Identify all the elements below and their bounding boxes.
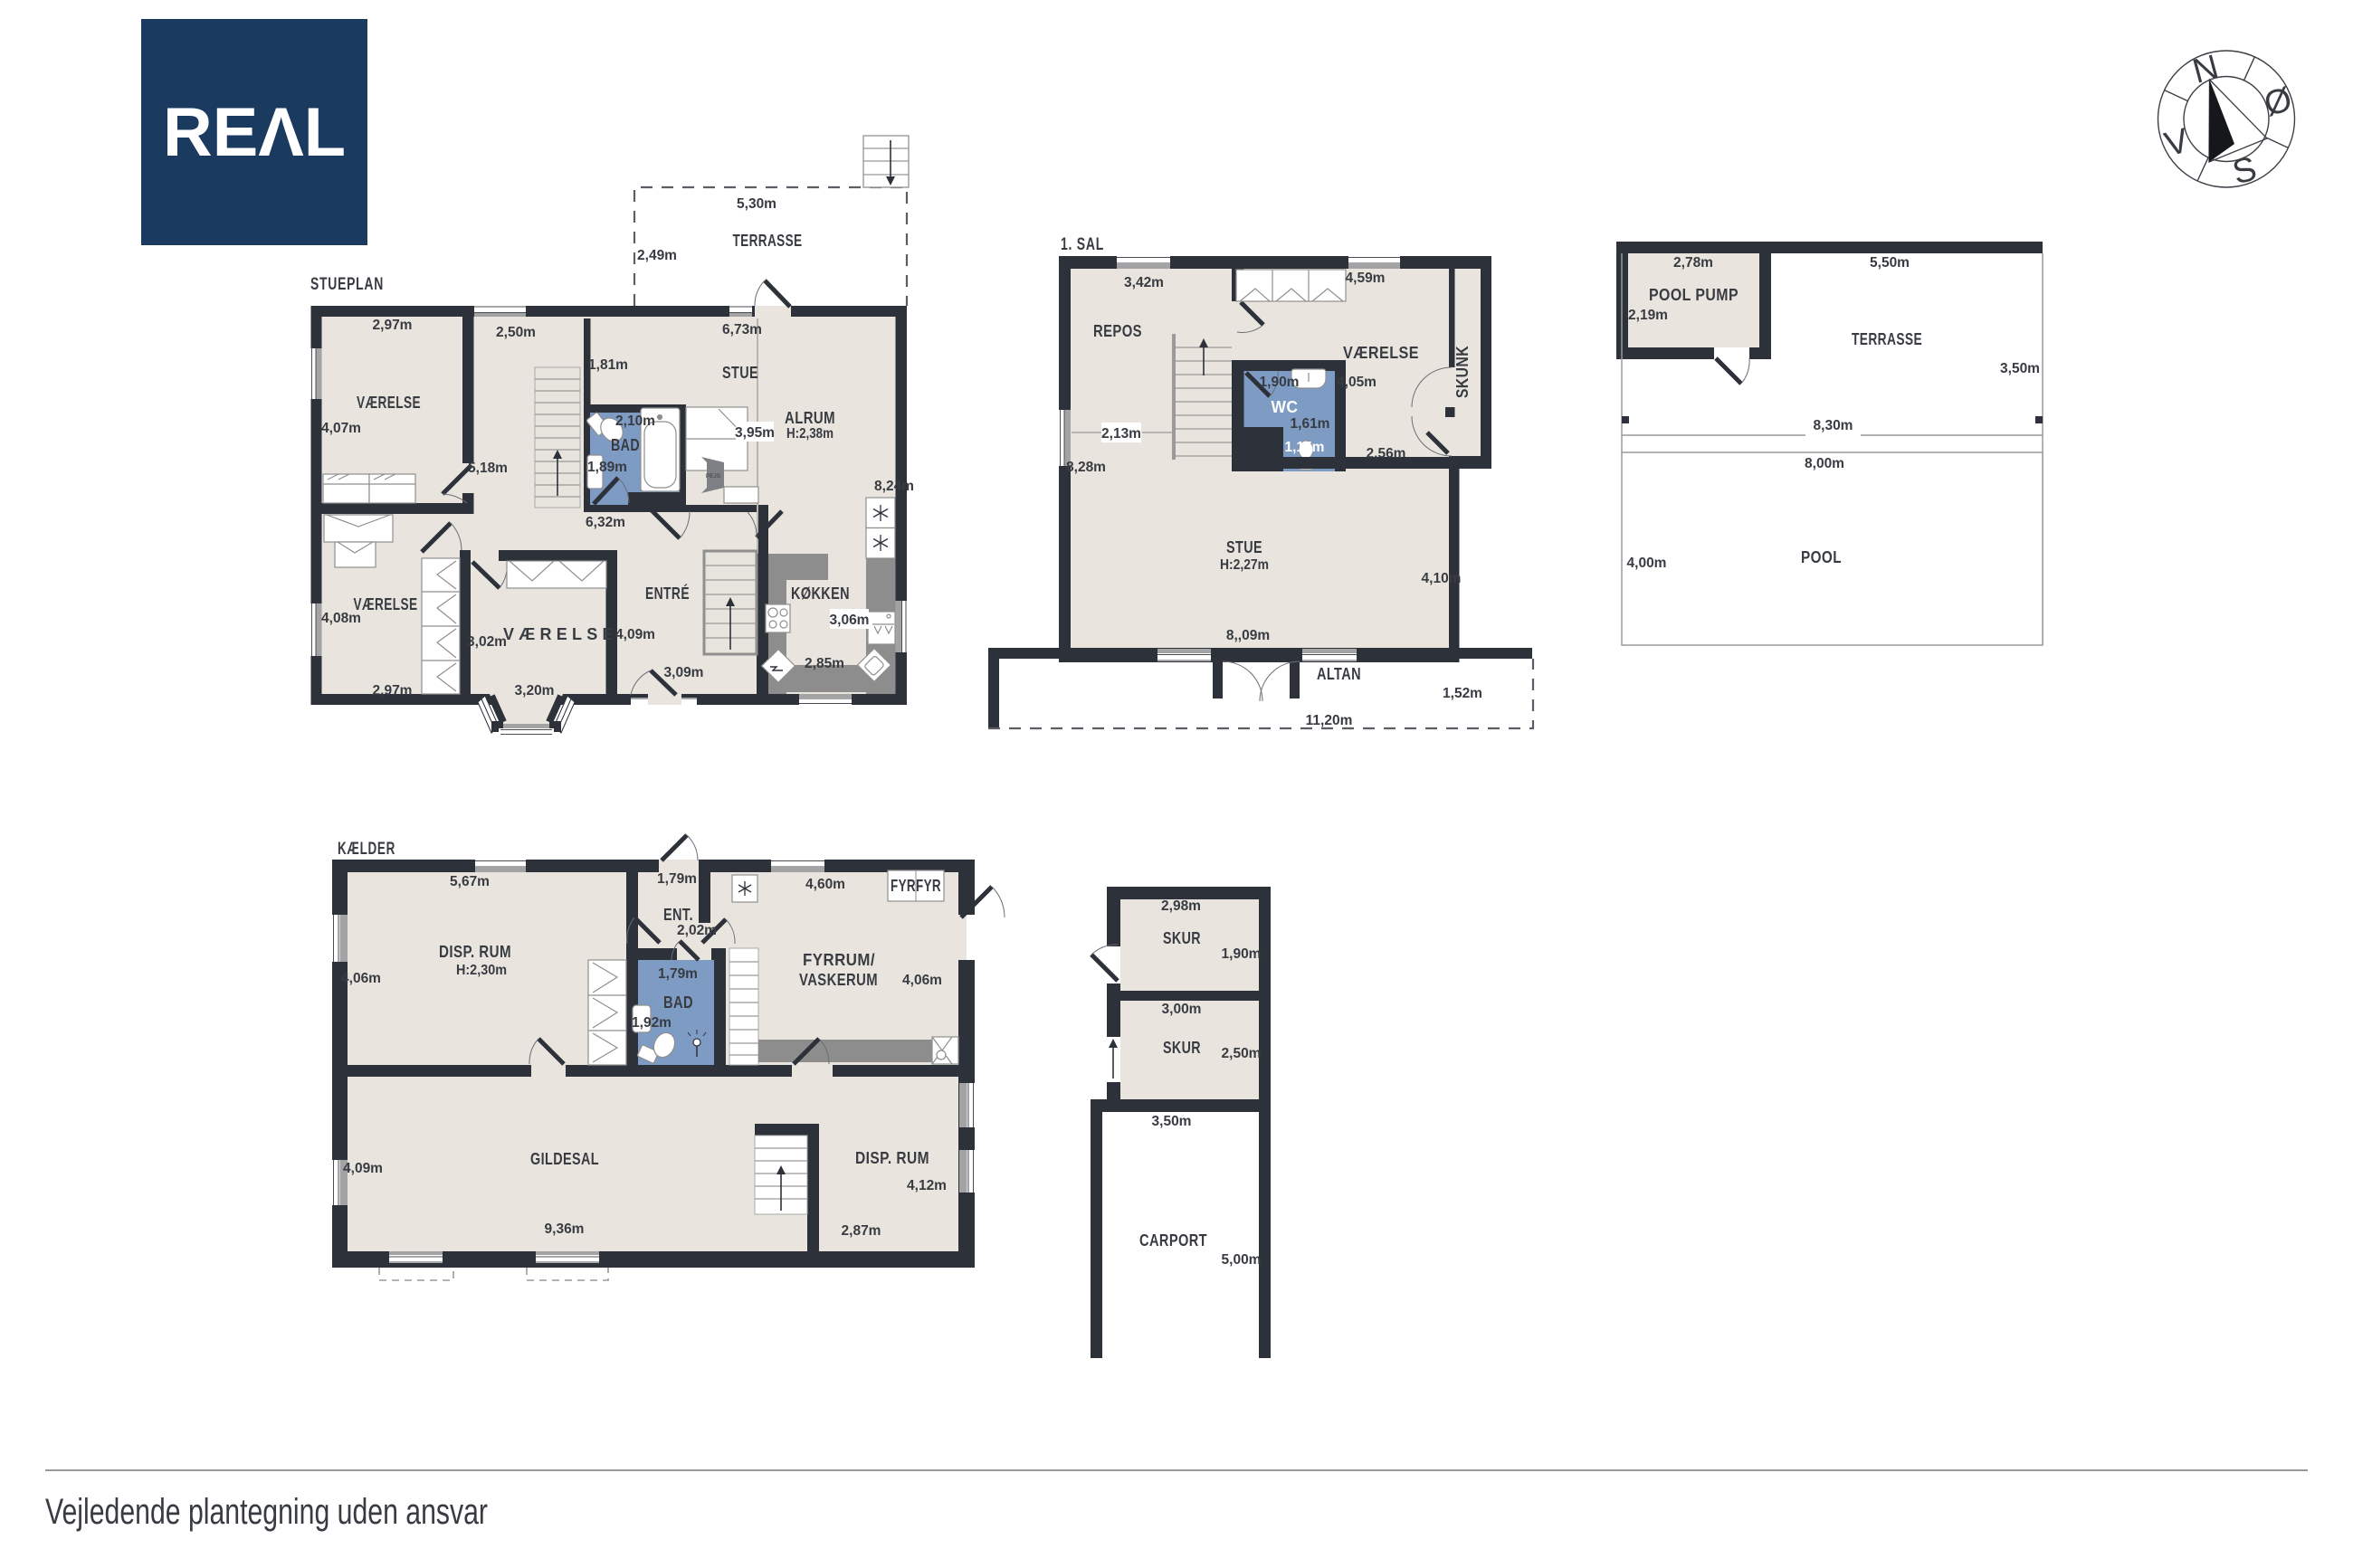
svg-text:8,30m: 8,30m xyxy=(1814,418,1853,433)
svg-text:1,15m: 1,15m xyxy=(1285,440,1325,455)
svg-text:VÆRELSE: VÆRELSE xyxy=(1343,344,1419,362)
svg-text:VÆRELSE: VÆRELSE xyxy=(354,595,418,613)
svg-text:Vejledende plantegning uden an: Vejledende plantegning uden ansvar xyxy=(45,1492,488,1532)
svg-text:REPOS: REPOS xyxy=(1093,322,1142,340)
svg-text:8,24m: 8,24m xyxy=(874,479,914,494)
svg-text:2,50m: 2,50m xyxy=(496,325,536,340)
svg-text:2,02m: 2,02m xyxy=(677,923,717,938)
svg-text:1,79m: 1,79m xyxy=(658,966,698,982)
svg-text:DISP. RUM: DISP. RUM xyxy=(439,943,511,961)
svg-text:4,09m: 4,09m xyxy=(343,1161,383,1176)
svg-text:9,36m: 9,36m xyxy=(545,1221,585,1237)
svg-text:Ø: Ø xyxy=(2261,81,2296,124)
svg-text:1,92m: 1,92m xyxy=(632,1015,672,1031)
svg-text:2,49m: 2,49m xyxy=(637,248,677,263)
svg-text:11,20m: 11,20m xyxy=(1306,713,1353,728)
svg-text:VÆRELSE: VÆRELSE xyxy=(503,625,614,643)
svg-text:H:2,30m: H:2,30m xyxy=(456,963,507,978)
svg-text:TERRASSE: TERRASSE xyxy=(733,232,803,250)
svg-text:2,98m: 2,98m xyxy=(1161,898,1201,914)
svg-text:3,42m: 3,42m xyxy=(1124,275,1164,290)
svg-text:3,95m: 3,95m xyxy=(735,425,775,441)
svg-text:4,06m: 4,06m xyxy=(902,973,942,988)
svg-text:STUEPLAN: STUEPLAN xyxy=(310,275,384,294)
svg-text:6,73m: 6,73m xyxy=(722,322,762,337)
svg-text:POOL: POOL xyxy=(1801,548,1842,566)
svg-text:4,09m: 4,09m xyxy=(615,627,655,642)
svg-text:2,87m: 2,87m xyxy=(842,1223,881,1239)
svg-text:1,61m: 1,61m xyxy=(1291,416,1330,432)
svg-text:VASKERUM: VASKERUM xyxy=(799,971,878,989)
svg-text:4,07m: 4,07m xyxy=(321,421,361,436)
svg-text:4,05m: 4,05m xyxy=(1337,375,1377,390)
svg-text:WC: WC xyxy=(1272,398,1299,416)
svg-text:8,,09m: 8,,09m xyxy=(1226,628,1270,643)
svg-text:S: S xyxy=(2229,149,2261,192)
svg-text:SKUR: SKUR xyxy=(1163,929,1201,947)
svg-text:3,06m: 3,06m xyxy=(830,613,870,628)
svg-text:5,50m: 5,50m xyxy=(1870,255,1910,271)
svg-text:1,89m: 1,89m xyxy=(587,460,627,475)
svg-text:5,18m: 5,18m xyxy=(468,461,508,476)
svg-text:KÆLDER: KÆLDER xyxy=(338,840,395,859)
svg-text:2,85m: 2,85m xyxy=(805,656,844,671)
svg-text:TERRASSE: TERRASSE xyxy=(1852,330,1922,348)
svg-text:ENT.: ENT. xyxy=(663,906,693,924)
svg-text:3,00m: 3,00m xyxy=(1162,1002,1202,1017)
svg-text:1,81m: 1,81m xyxy=(588,357,628,373)
svg-text:3,50m: 3,50m xyxy=(2000,361,2040,376)
svg-text:3,20m: 3,20m xyxy=(515,683,555,698)
svg-text:DISP. RUM: DISP. RUM xyxy=(855,1149,929,1167)
svg-text:4,60m: 4,60m xyxy=(805,877,845,892)
svg-text:4,08m: 4,08m xyxy=(321,611,361,626)
svg-text:STUE: STUE xyxy=(1226,538,1262,556)
svg-text:SKUR: SKUR xyxy=(1163,1039,1201,1057)
svg-text:2,10m: 2,10m xyxy=(615,413,655,429)
svg-text:N: N xyxy=(2189,48,2223,91)
svg-text:4,59m: 4,59m xyxy=(1346,271,1386,286)
svg-text:2,78m: 2,78m xyxy=(1673,255,1713,271)
svg-text:BAD: BAD xyxy=(611,436,640,454)
svg-text:KØKKEN: KØKKEN xyxy=(791,584,850,603)
svg-text:2,97m: 2,97m xyxy=(373,318,413,333)
svg-text:1,90m: 1,90m xyxy=(1260,375,1300,390)
svg-text:ALTAN: ALTAN xyxy=(1317,665,1361,683)
svg-text:2,13m: 2,13m xyxy=(1101,426,1141,442)
svg-text:GILDESAL: GILDESAL xyxy=(530,1150,599,1168)
svg-text:1. SAL: 1. SAL xyxy=(1061,235,1104,254)
svg-text:3,50m: 3,50m xyxy=(1152,1114,1192,1129)
svg-text:8,00m: 8,00m xyxy=(1805,456,1844,471)
svg-text:ENTRÉ: ENTRÉ xyxy=(645,584,690,603)
svg-text:STUE: STUE xyxy=(722,364,758,382)
svg-text:2,19m: 2,19m xyxy=(1628,308,1668,323)
svg-text:3,09m: 3,09m xyxy=(664,665,704,680)
svg-text:REΛL: REΛL xyxy=(163,94,346,171)
svg-text:3,02m: 3,02m xyxy=(467,634,507,650)
svg-text:CARPORT: CARPORT xyxy=(1139,1231,1207,1250)
svg-text:ALRUM: ALRUM xyxy=(785,409,835,427)
svg-text:2,97m: 2,97m xyxy=(373,683,413,698)
svg-text:VÆRELSE: VÆRELSE xyxy=(357,394,421,412)
svg-text:2,50m: 2,50m xyxy=(1222,1046,1262,1061)
svg-text:2,56m: 2,56m xyxy=(1367,446,1406,461)
svg-text:FYRFYR: FYRFYR xyxy=(891,877,941,895)
svg-text:H:2,38m: H:2,38m xyxy=(786,426,834,442)
svg-text:8,28m: 8,28m xyxy=(1066,460,1106,475)
svg-text:5,67m: 5,67m xyxy=(450,874,490,889)
svg-text:5,00m: 5,00m xyxy=(1222,1252,1262,1268)
svg-text:1,79m: 1,79m xyxy=(657,871,697,887)
svg-text:4,10m: 4,10m xyxy=(1422,571,1462,586)
svg-text:4,00m: 4,00m xyxy=(1627,556,1667,571)
svg-text:PEJS: PEJS xyxy=(706,473,721,480)
svg-text:6,32m: 6,32m xyxy=(586,515,625,530)
svg-text:V: V xyxy=(2161,121,2194,164)
svg-text:POOL PUMP: POOL PUMP xyxy=(1649,286,1739,304)
svg-text:BAD: BAD xyxy=(663,993,693,1012)
svg-text:4,06m: 4,06m xyxy=(341,971,381,986)
svg-text:1,52m: 1,52m xyxy=(1443,686,1482,701)
svg-text:1,90m: 1,90m xyxy=(1222,946,1262,962)
svg-text:4,12m: 4,12m xyxy=(907,1178,947,1193)
svg-text:5,30m: 5,30m xyxy=(737,196,776,212)
svg-text:H:2,27m: H:2,27m xyxy=(1220,557,1269,573)
svg-text:SKUNK: SKUNK xyxy=(1453,346,1472,398)
svg-text:FYRRUM/: FYRRUM/ xyxy=(803,951,875,969)
